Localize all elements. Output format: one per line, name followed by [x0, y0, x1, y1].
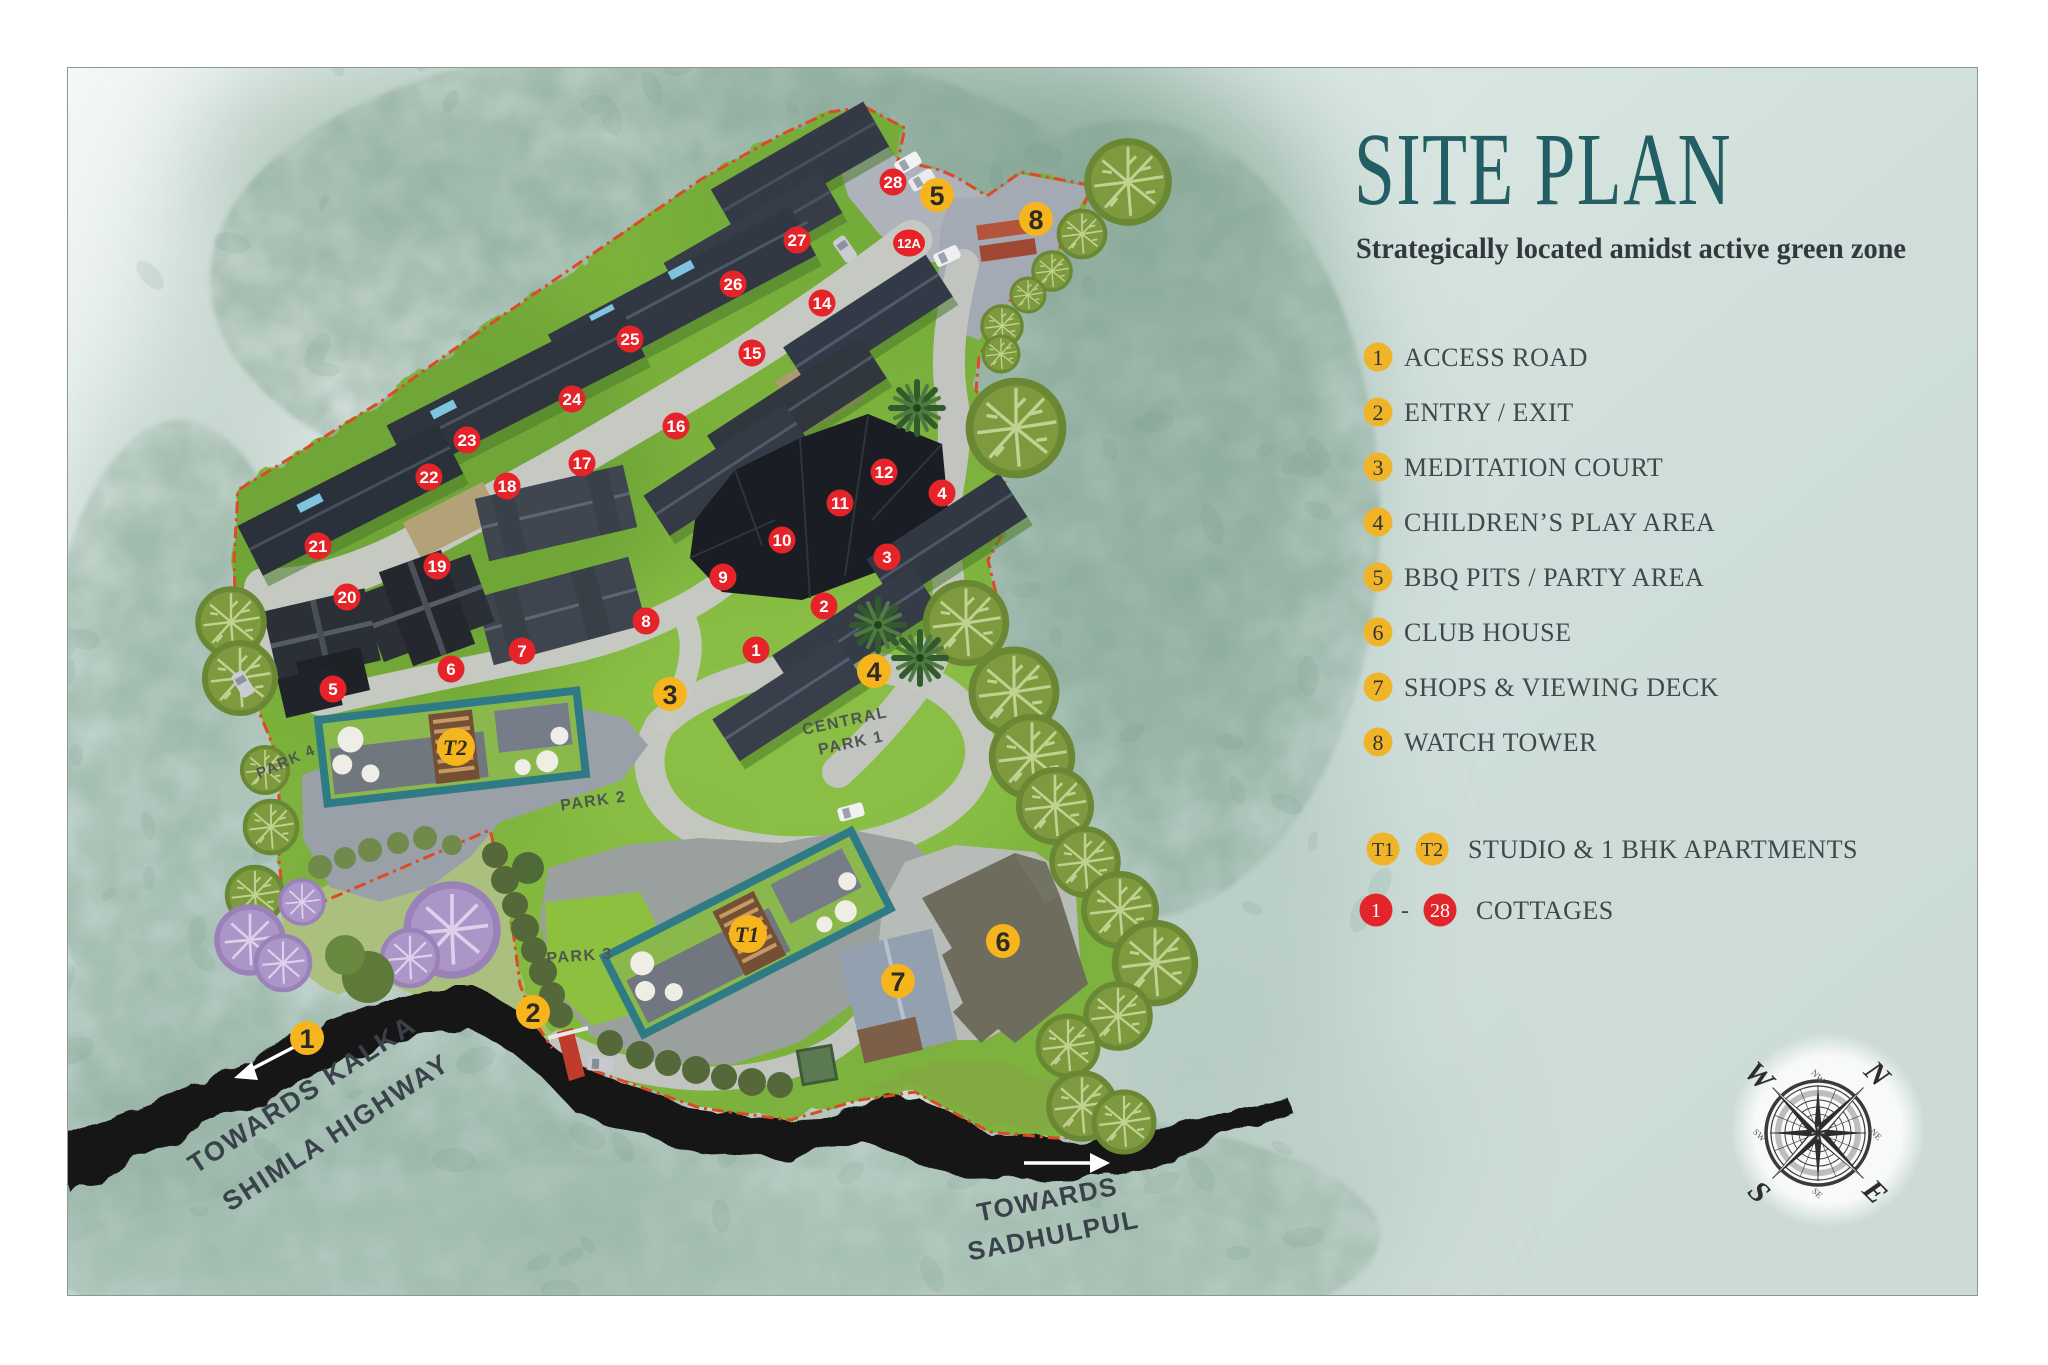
svg-text:20: 20 — [338, 588, 357, 607]
svg-text:25: 25 — [621, 330, 640, 349]
svg-text:SITE PLAN: SITE PLAN — [1354, 112, 1732, 227]
svg-text:28: 28 — [884, 173, 903, 192]
svg-text:Strategically located amidst a: Strategically located amidst active gree… — [1356, 232, 1906, 265]
svg-text:10: 10 — [773, 531, 792, 550]
svg-text:23: 23 — [458, 431, 477, 450]
svg-text:1: 1 — [751, 641, 760, 660]
svg-text:22: 22 — [420, 468, 439, 487]
svg-text:21: 21 — [309, 537, 328, 556]
svg-text:12A: 12A — [897, 236, 921, 251]
svg-text:28: 28 — [1430, 900, 1450, 922]
svg-text:5: 5 — [929, 181, 944, 211]
svg-text:16: 16 — [667, 417, 686, 436]
svg-text:SHOPS & VIEWING DECK: SHOPS & VIEWING DECK — [1404, 673, 1719, 702]
svg-text:3: 3 — [882, 548, 891, 567]
svg-text:2: 2 — [819, 597, 828, 616]
svg-text:1: 1 — [1371, 900, 1381, 922]
svg-text:7: 7 — [890, 967, 905, 997]
svg-text:STUDIO & 1 BHK APARTMENTS: STUDIO & 1 BHK APARTMENTS — [1468, 835, 1858, 864]
svg-text:1: 1 — [1373, 345, 1384, 370]
svg-text:1: 1 — [299, 1024, 314, 1054]
svg-text:2: 2 — [1373, 400, 1384, 425]
svg-text:17: 17 — [573, 454, 592, 473]
svg-text:4: 4 — [937, 484, 947, 503]
svg-text:7: 7 — [517, 642, 526, 661]
svg-text:ENTRY / EXIT: ENTRY / EXIT — [1404, 398, 1574, 427]
svg-text:T1: T1 — [735, 922, 759, 947]
svg-text:18: 18 — [498, 477, 517, 496]
svg-text:6: 6 — [446, 660, 455, 679]
svg-text:14: 14 — [813, 294, 832, 313]
svg-text:26: 26 — [724, 275, 743, 294]
svg-text:11: 11 — [831, 494, 849, 513]
svg-text:8: 8 — [1028, 205, 1043, 235]
svg-text:T2: T2 — [443, 735, 467, 760]
svg-text:6: 6 — [1373, 620, 1384, 645]
svg-text:6: 6 — [995, 927, 1010, 957]
svg-text:12: 12 — [875, 463, 894, 482]
svg-text:3: 3 — [1373, 455, 1384, 480]
svg-text:24: 24 — [563, 390, 582, 409]
svg-text:8: 8 — [641, 612, 650, 631]
svg-text:T2: T2 — [1421, 839, 1443, 861]
svg-text:ACCESS ROAD: ACCESS ROAD — [1404, 343, 1588, 372]
svg-text:5: 5 — [328, 680, 337, 699]
svg-text:4: 4 — [866, 657, 881, 687]
svg-text:4: 4 — [1373, 510, 1384, 535]
svg-text:15: 15 — [743, 344, 762, 363]
svg-text:-: - — [1401, 898, 1409, 924]
svg-text:T1: T1 — [1372, 839, 1394, 861]
svg-text:7: 7 — [1373, 675, 1384, 700]
svg-text:BBQ PITS / PARTY AREA: BBQ PITS / PARTY AREA — [1404, 563, 1704, 592]
svg-text:CHILDREN’S PLAY AREA: CHILDREN’S PLAY AREA — [1404, 508, 1715, 537]
svg-text:MEDITATION COURT: MEDITATION COURT — [1404, 453, 1663, 482]
svg-text:27: 27 — [788, 231, 807, 250]
svg-text:COTTAGES: COTTAGES — [1476, 896, 1614, 925]
svg-text:9: 9 — [718, 568, 727, 587]
svg-text:2: 2 — [525, 998, 540, 1028]
svg-text:5: 5 — [1373, 565, 1384, 590]
svg-text:CLUB HOUSE: CLUB HOUSE — [1404, 618, 1572, 647]
svg-text:WATCH TOWER: WATCH TOWER — [1404, 728, 1597, 757]
svg-text:8: 8 — [1373, 730, 1384, 755]
svg-text:3: 3 — [662, 680, 677, 710]
svg-text:19: 19 — [428, 557, 447, 576]
